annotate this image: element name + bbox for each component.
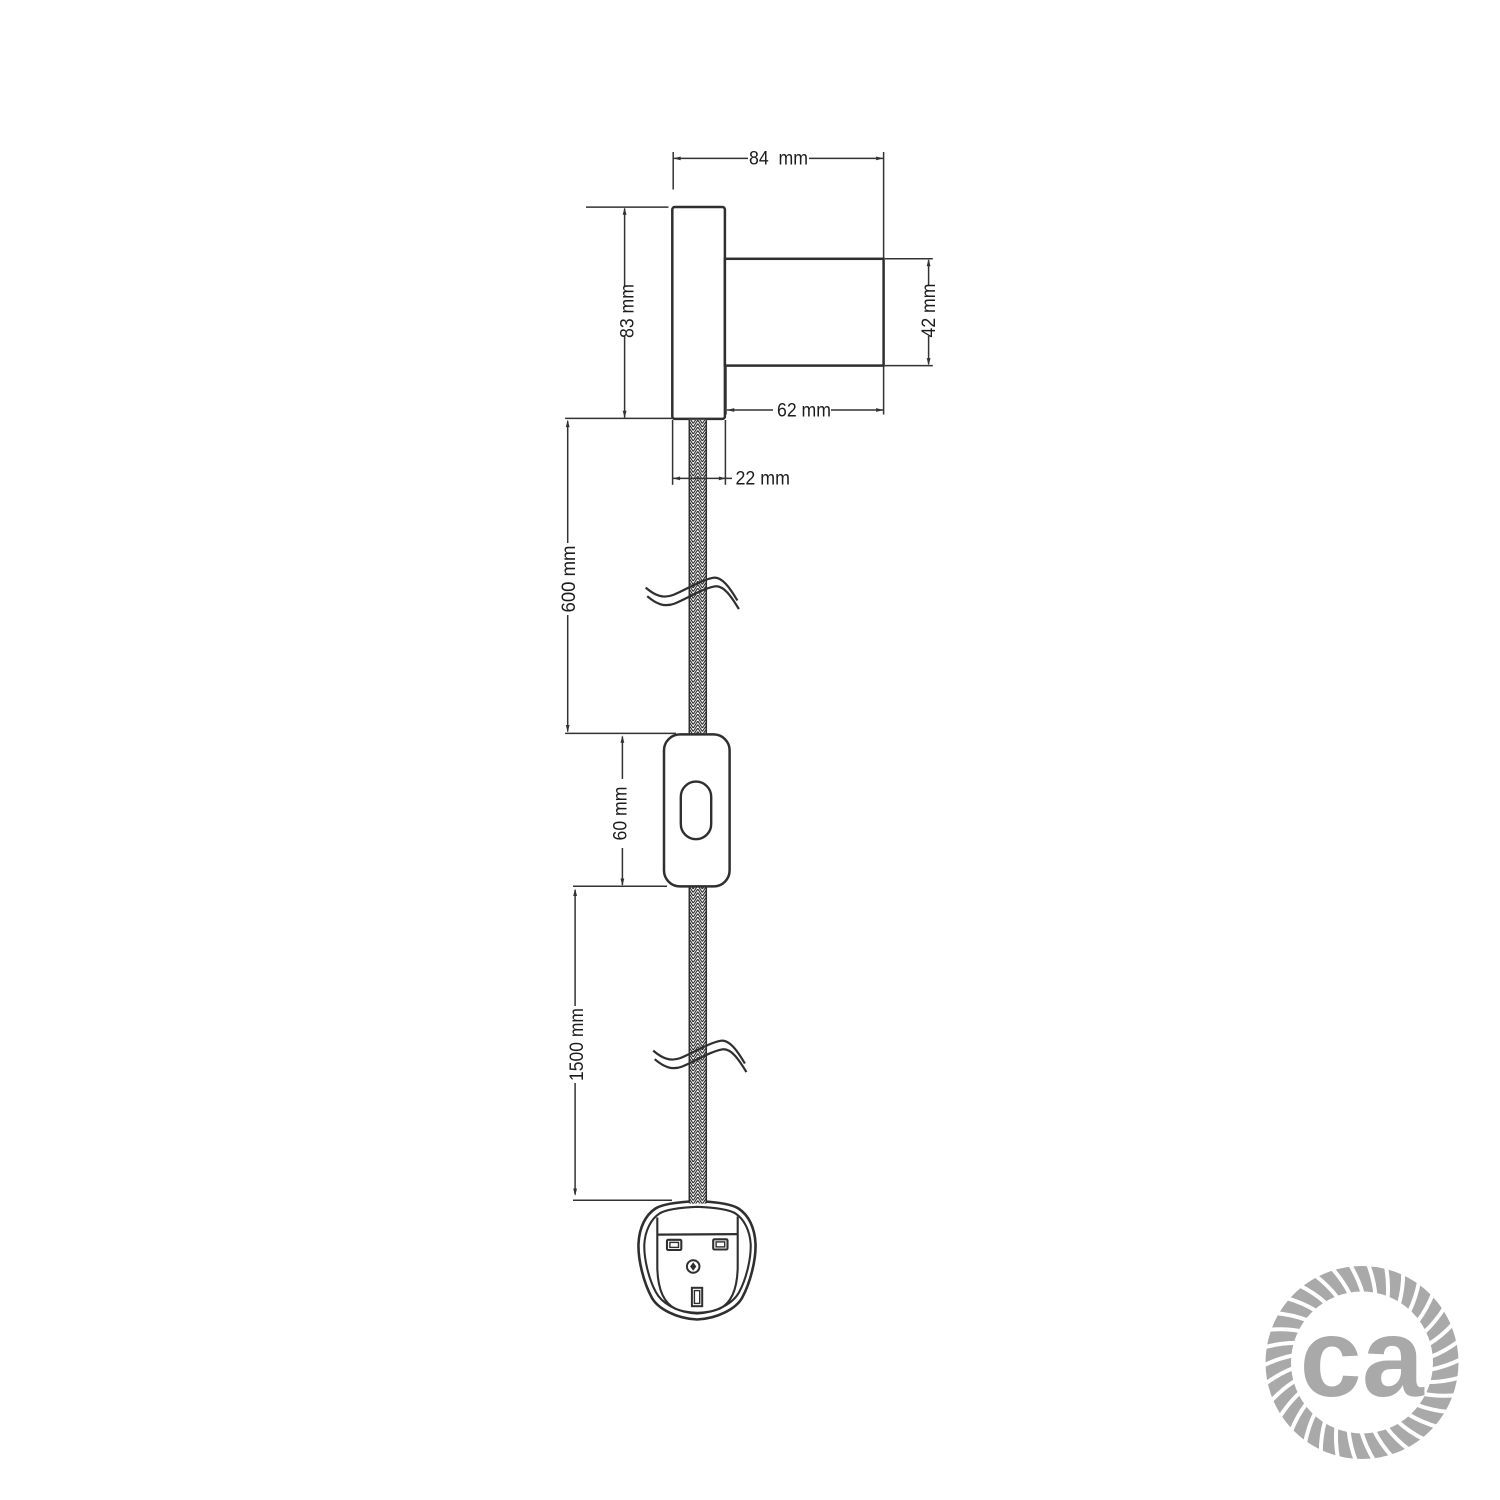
svg-text:ca: ca [1300,1296,1425,1420]
svg-text:42 mm: 42 mm [918,284,940,338]
svg-text:60 mm: 60 mm [610,787,632,841]
svg-text:62 mm: 62 mm [777,399,831,421]
svg-text:83 mm: 83 mm [616,284,638,338]
svg-text:1500 mm: 1500 mm [566,1008,588,1081]
svg-text:600 mm: 600 mm [558,546,580,613]
svg-text:84 mm: 84 mm [749,148,808,170]
svg-text:22 mm: 22 mm [736,468,791,490]
